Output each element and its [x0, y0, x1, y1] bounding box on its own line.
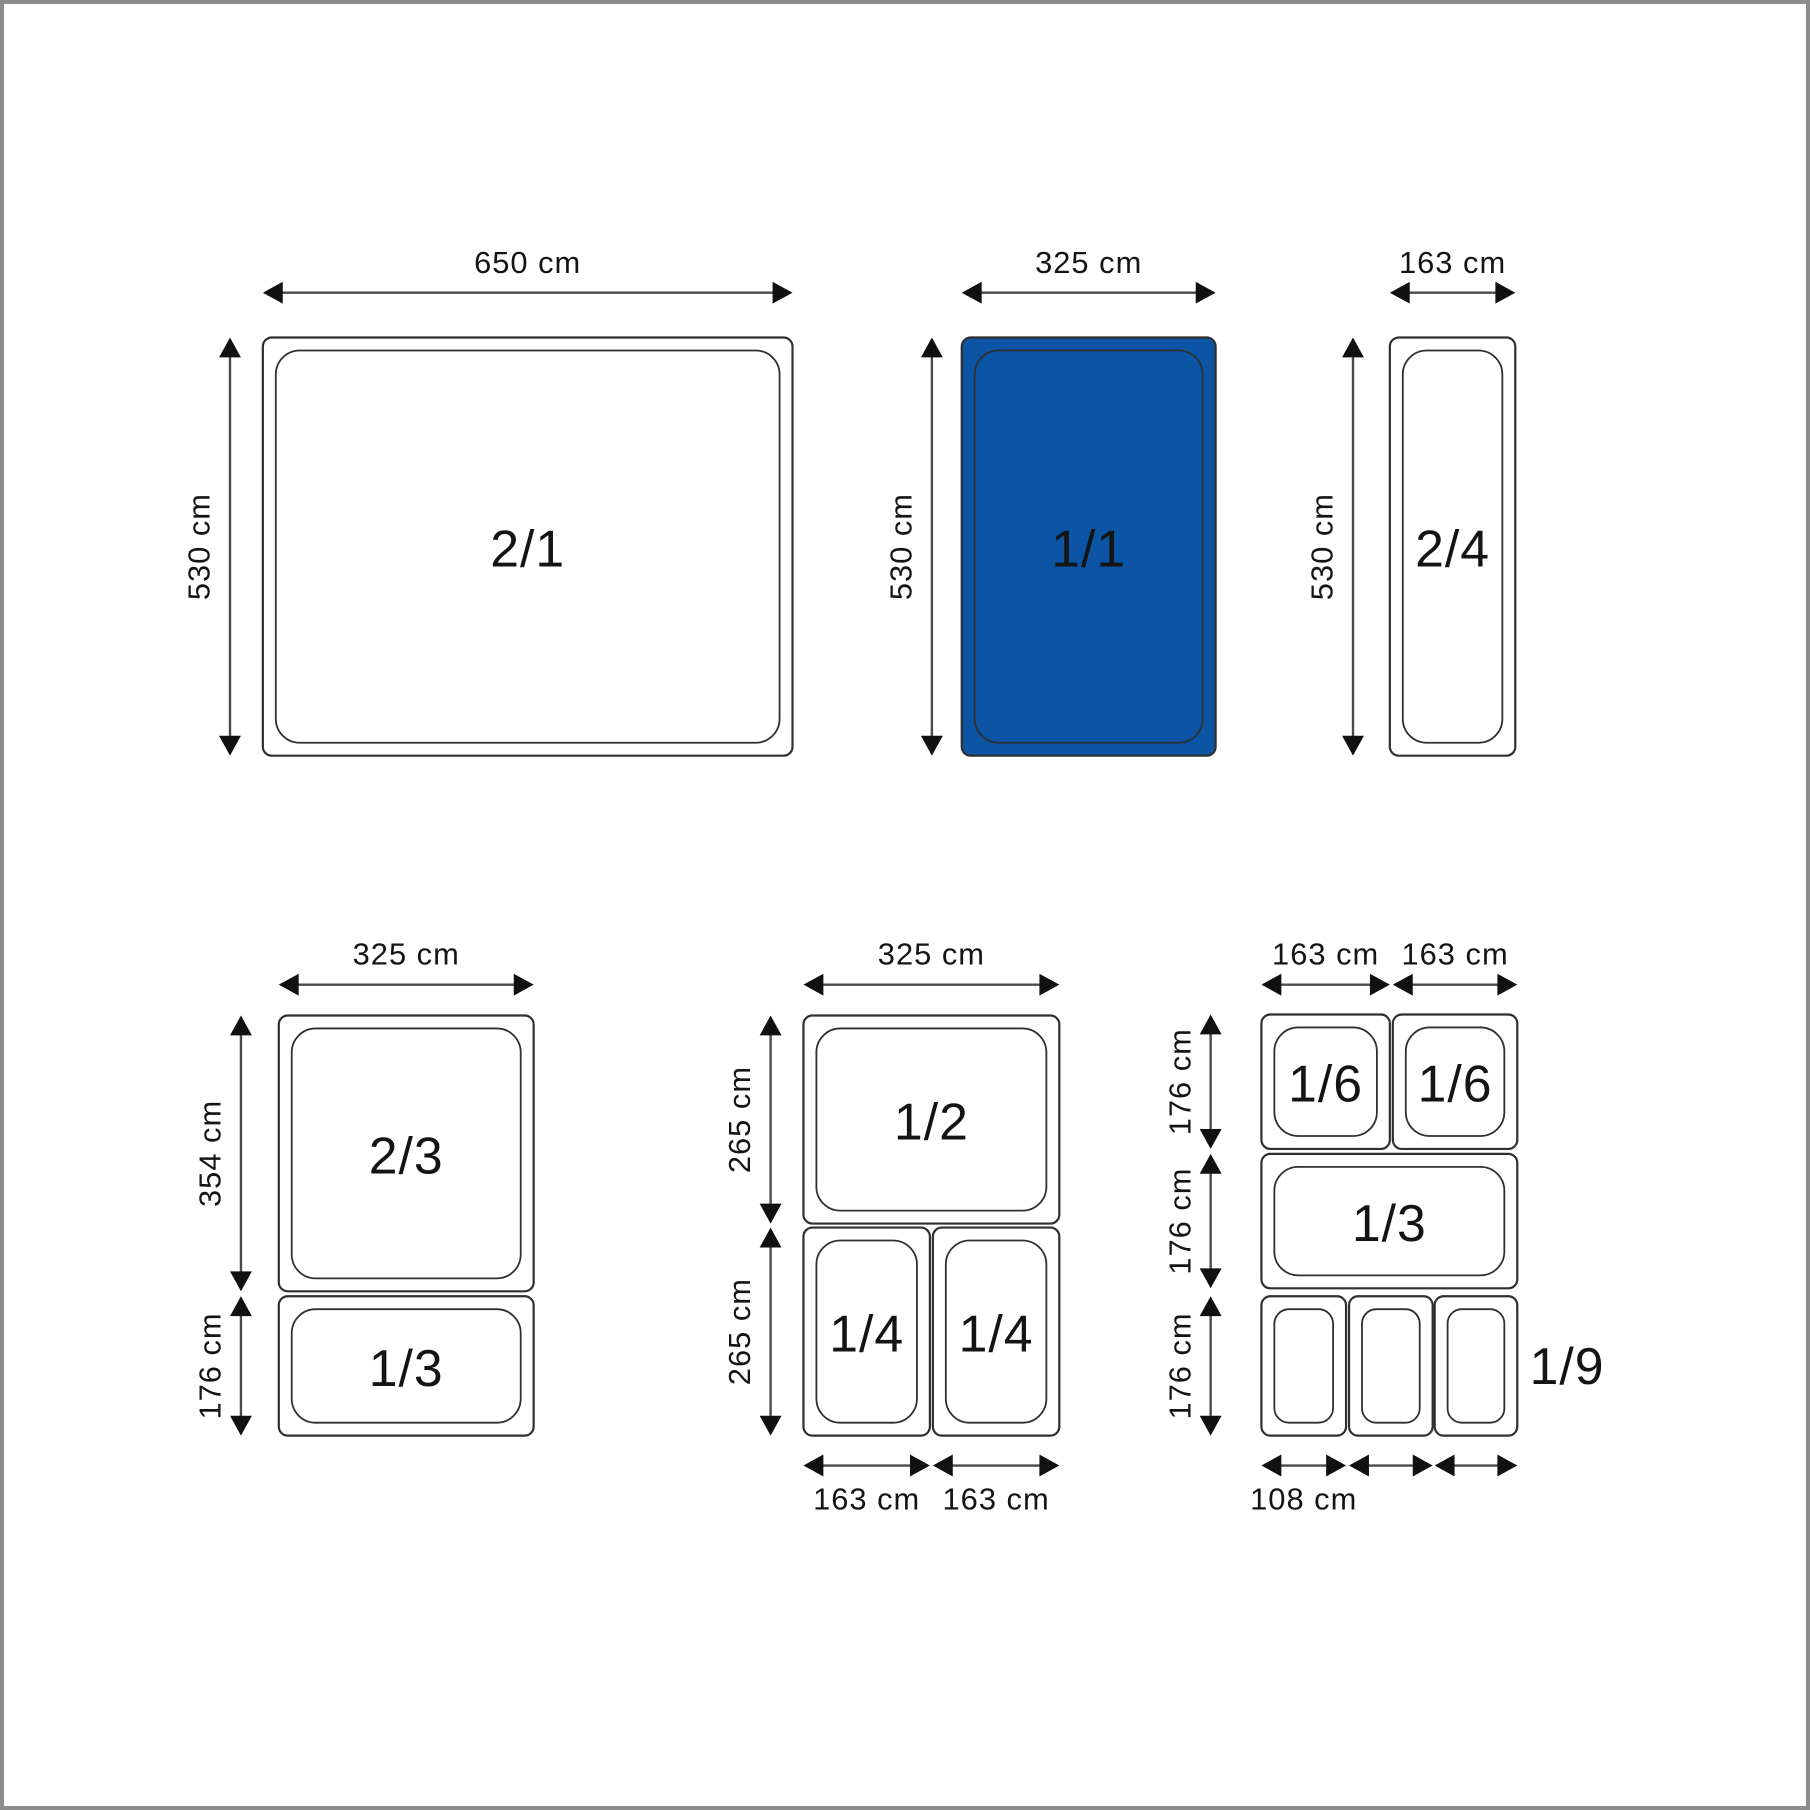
dim-325-mid-group: 325 cm — [803, 937, 1059, 996]
dim-530-c: 530 cm — [1305, 338, 1364, 756]
arrowhead-icon — [1326, 1455, 1346, 1477]
arrowhead-icon — [1039, 974, 1059, 996]
arrowhead-icon — [1393, 974, 1413, 996]
dim-325-left-group-label: 325 cm — [353, 937, 460, 972]
pan-2-1-label: 2/1 — [490, 520, 565, 578]
arrowhead-icon — [1349, 1455, 1369, 1477]
dim-176-left: 176 cm — [193, 1296, 252, 1435]
page-frame: 2/11/12/42/31/31/21/41/41/61/61/31/9650 … — [0, 0, 1810, 1810]
dim-530-a-label: 530 cm — [182, 493, 217, 600]
dim-163-top-label: 163 cm — [1399, 245, 1506, 280]
pan-2-3-label: 2/3 — [369, 1126, 444, 1184]
dim-354-label: 354 cm — [193, 1100, 228, 1207]
dim-530-c-label: 530 cm — [1305, 493, 1340, 600]
dim-163-right-a: 163 cm — [1261, 937, 1389, 996]
arrowhead-icon — [219, 338, 241, 358]
arrowhead-icon — [1342, 736, 1364, 756]
pan-2-3: 2/3 — [279, 1016, 534, 1292]
arrowhead-icon — [514, 974, 534, 996]
dim-163-bottom-a: 163 cm — [803, 1455, 929, 1517]
pan-1-3-left: 1/3 — [279, 1296, 534, 1435]
arrowhead-icon — [230, 1296, 252, 1316]
arrowhead-icon — [910, 1455, 930, 1477]
pan-2-1: 2/1 — [263, 338, 793, 756]
arrowhead-icon — [1200, 1296, 1222, 1316]
arrowhead-icon — [760, 1204, 782, 1224]
pan-1-1: 1/1 — [962, 338, 1216, 756]
dim-163-bottom-b-label: 163 cm — [943, 1481, 1050, 1516]
dim-530-a: 530 cm — [182, 338, 241, 756]
pan-1-6-a-label: 1/6 — [1288, 1055, 1363, 1113]
dim-176-right-b-label: 176 cm — [1162, 1168, 1197, 1275]
pan-1-1-label: 1/1 — [1051, 520, 1126, 578]
dim-176-right-a-label: 176 cm — [1162, 1028, 1197, 1135]
dim-530-b: 530 cm — [884, 338, 943, 756]
pan-1-4-a-label: 1/4 — [829, 1305, 904, 1363]
dim-108-bottom-a: 108 cm — [1250, 1455, 1357, 1517]
arrowhead-icon — [1200, 1268, 1222, 1288]
arrowhead-icon — [760, 1016, 782, 1036]
label-1-9: 1/9 — [1530, 1337, 1605, 1395]
gastronorm-diagram: 2/11/12/42/31/31/21/41/41/61/61/31/9650 … — [4, 4, 1806, 1806]
pan-1-4-a: 1/4 — [803, 1228, 929, 1436]
arrowhead-icon — [921, 338, 943, 358]
arrowhead-icon — [230, 1416, 252, 1436]
pan-1-3-right-label: 1/3 — [1352, 1194, 1427, 1252]
dim-265-a-label: 265 cm — [722, 1066, 757, 1173]
arrowhead-icon — [803, 974, 823, 996]
pan-1-9-b — [1349, 1296, 1433, 1435]
dim-354: 354 cm — [193, 1016, 252, 1292]
arrowhead-icon — [1390, 282, 1410, 304]
arrowhead-icon — [1435, 1455, 1455, 1477]
arrowhead-icon — [1200, 1015, 1222, 1035]
arrowhead-icon — [1370, 974, 1390, 996]
dim-163-top: 163 cm — [1390, 245, 1515, 304]
arrowhead-icon — [263, 282, 283, 304]
arrowhead-icon — [1196, 282, 1216, 304]
arrowhead-icon — [230, 1271, 252, 1291]
arrowhead-icon — [1200, 1129, 1222, 1149]
pan-1-6-b: 1/6 — [1393, 1015, 1517, 1149]
dim-325-top: 325 cm — [962, 245, 1216, 304]
dim-176-right-b: 176 cm — [1162, 1154, 1221, 1288]
pan-1-6-a: 1/6 — [1261, 1015, 1389, 1149]
pan-1-9-a — [1261, 1296, 1346, 1435]
pan-1-3-right: 1/3 — [1261, 1154, 1517, 1288]
pan-1-6-b-label: 1/6 — [1418, 1055, 1493, 1113]
arrowhead-icon — [1261, 974, 1281, 996]
arrowhead-icon — [1495, 282, 1515, 304]
arrowhead-icon — [962, 282, 982, 304]
arrowhead-icon — [773, 282, 793, 304]
arrowhead-icon — [1342, 338, 1364, 358]
dim-325-left-group: 325 cm — [279, 937, 534, 996]
dim-163-bottom-a-label: 163 cm — [813, 1481, 920, 1516]
dim-163-right-b-label: 163 cm — [1401, 937, 1508, 972]
pan-1-9-c — [1435, 1296, 1518, 1435]
arrowhead-icon — [1497, 974, 1517, 996]
arrowhead-icon — [760, 1416, 782, 1436]
dim-325-mid-group-label: 325 cm — [878, 937, 985, 972]
dim-325-top-label: 325 cm — [1035, 245, 1142, 280]
dim-176-right-a: 176 cm — [1162, 1015, 1221, 1149]
arrowhead-icon — [1413, 1455, 1433, 1477]
dim-163-right-a-label: 163 cm — [1272, 937, 1379, 972]
arrowhead-icon — [1497, 1455, 1517, 1477]
dim-265-a: 265 cm — [722, 1016, 781, 1224]
arrowhead-icon — [230, 1016, 252, 1036]
arrowhead-icon — [1039, 1455, 1059, 1477]
arrowhead-icon — [1200, 1154, 1222, 1174]
arrowhead-icon — [921, 736, 943, 756]
dim-530-b-label: 530 cm — [884, 493, 919, 600]
dim-108-bottom-c — [1435, 1455, 1518, 1477]
pan-1-4-b-label: 1/4 — [959, 1305, 1034, 1363]
arrowhead-icon — [933, 1455, 953, 1477]
arrowhead-icon — [1261, 1455, 1281, 1477]
dim-176-right-c: 176 cm — [1162, 1296, 1221, 1435]
dim-108-bottom-a-label: 108 cm — [1250, 1481, 1357, 1516]
arrowhead-icon — [803, 1455, 823, 1477]
pan-1-2: 1/2 — [803, 1016, 1059, 1224]
dim-163-bottom-b: 163 cm — [933, 1455, 1059, 1517]
dim-650-top-label: 650 cm — [474, 245, 581, 280]
arrowhead-icon — [1200, 1416, 1222, 1436]
pan-2-4-label: 2/4 — [1415, 520, 1490, 578]
dim-650-top: 650 cm — [263, 245, 793, 304]
pan-2-4: 2/4 — [1390, 338, 1515, 756]
pan-1-2-label: 1/2 — [894, 1093, 969, 1151]
arrowhead-icon — [279, 974, 299, 996]
dim-265-b: 265 cm — [722, 1228, 781, 1436]
pan-1-4-b: 1/4 — [933, 1228, 1059, 1436]
dim-265-b-label: 265 cm — [722, 1278, 757, 1385]
dim-163-right-b: 163 cm — [1393, 937, 1517, 996]
pan-1-3-left-label: 1/3 — [369, 1339, 444, 1397]
dim-176-right-c-label: 176 cm — [1162, 1312, 1197, 1419]
dim-108-bottom-b — [1349, 1455, 1433, 1477]
dim-176-left-label: 176 cm — [193, 1312, 228, 1419]
arrowhead-icon — [760, 1228, 782, 1248]
arrowhead-icon — [219, 736, 241, 756]
